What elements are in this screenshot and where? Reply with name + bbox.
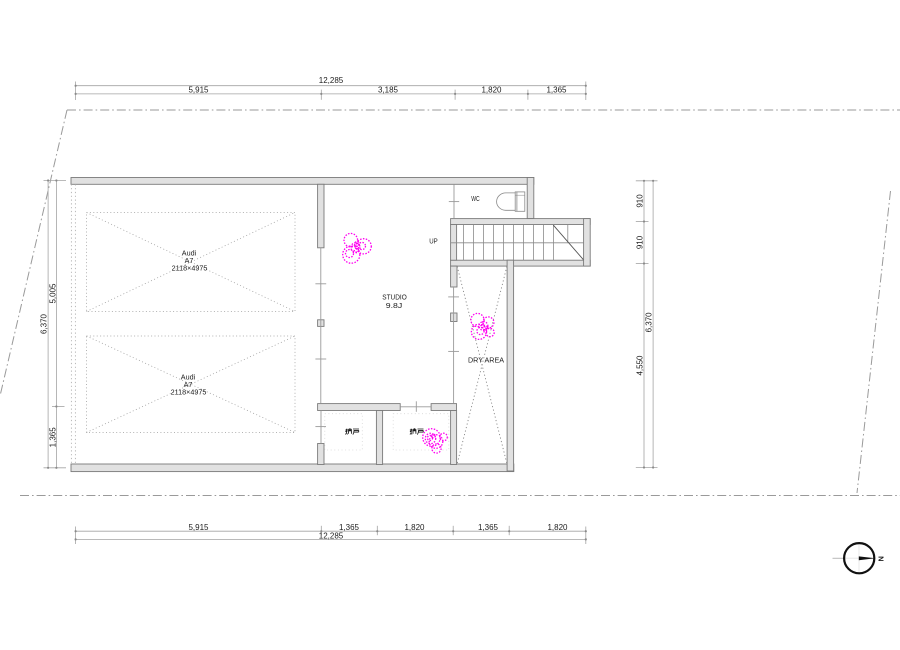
svg-text:WC: WC bbox=[471, 196, 480, 203]
svg-text:4,550: 4,550 bbox=[635, 355, 644, 376]
svg-text:1,365: 1,365 bbox=[546, 86, 567, 95]
svg-text:1,365: 1,365 bbox=[478, 523, 499, 532]
svg-text:UP: UP bbox=[429, 236, 438, 245]
svg-text:12,285: 12,285 bbox=[319, 531, 344, 540]
svg-text:910: 910 bbox=[635, 235, 644, 249]
svg-text:5,915: 5,915 bbox=[188, 86, 209, 95]
svg-text:1,820: 1,820 bbox=[481, 86, 502, 95]
svg-text:DRY AREA: DRY AREA bbox=[468, 355, 504, 364]
svg-text:N: N bbox=[876, 556, 885, 561]
svg-text:1,365: 1,365 bbox=[48, 427, 57, 448]
svg-text:6,370: 6,370 bbox=[645, 312, 654, 333]
svg-text:5,915: 5,915 bbox=[188, 523, 209, 532]
svg-text:910: 910 bbox=[635, 194, 644, 208]
svg-text:5,005: 5,005 bbox=[48, 283, 57, 304]
svg-text:9.8J: 9.8J bbox=[386, 301, 403, 310]
svg-text:1,820: 1,820 bbox=[404, 523, 425, 532]
svg-text:2118×4975: 2118×4975 bbox=[172, 264, 208, 273]
svg-text:3,185: 3,185 bbox=[378, 86, 399, 95]
svg-text:12,285: 12,285 bbox=[319, 76, 344, 85]
svg-text:2118×4975: 2118×4975 bbox=[171, 388, 207, 397]
svg-text:1,820: 1,820 bbox=[547, 523, 568, 532]
svg-text:6,370: 6,370 bbox=[40, 313, 49, 334]
